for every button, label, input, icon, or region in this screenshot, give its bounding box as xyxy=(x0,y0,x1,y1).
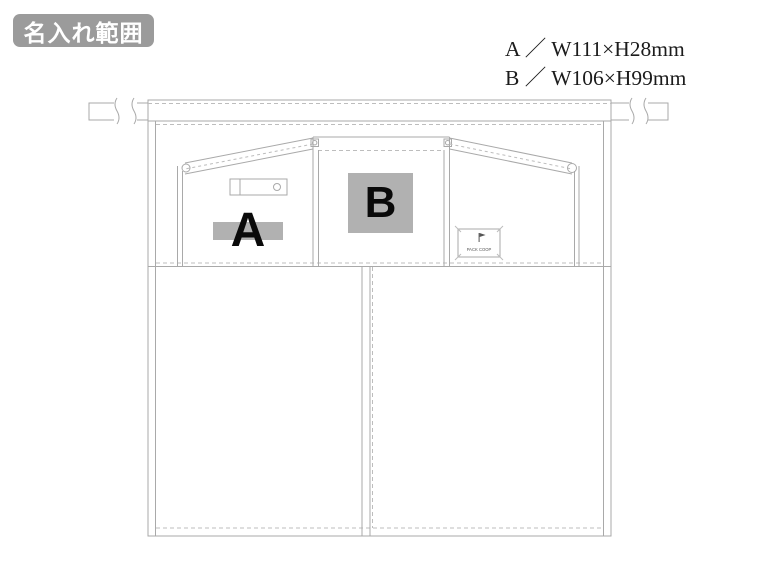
print-area-b-label: B xyxy=(365,181,397,225)
pocket-flap-left xyxy=(182,138,313,174)
strap-break-icon xyxy=(115,98,119,124)
right-strap xyxy=(611,98,668,124)
lower-panel xyxy=(362,267,373,537)
pen-holder xyxy=(230,179,287,195)
pocket-row xyxy=(148,263,611,267)
brand-patch-text: PACK COOP xyxy=(467,247,492,252)
rivet-icon xyxy=(274,184,281,191)
pocket-flap-right xyxy=(450,138,577,174)
strap-break-icon xyxy=(644,98,648,124)
brand-patch: PACK COOP xyxy=(455,226,503,260)
right-pocket: PACK COOP xyxy=(450,138,580,267)
apron-body xyxy=(148,100,611,536)
print-area-a: A xyxy=(213,205,283,257)
print-area-a-label: A xyxy=(231,207,266,255)
apron-line-drawing: PACK COOP xyxy=(0,0,760,570)
left-strap xyxy=(89,98,148,124)
strap-break-icon xyxy=(132,98,136,124)
grommet-icon xyxy=(444,139,452,147)
strap-break-icon xyxy=(630,98,634,124)
grommet-icon xyxy=(311,139,319,147)
page: 名入れ範囲 A ／ W111×H28mm B ／ W106×H99mm xyxy=(0,0,760,570)
print-area-b: B xyxy=(348,173,413,233)
